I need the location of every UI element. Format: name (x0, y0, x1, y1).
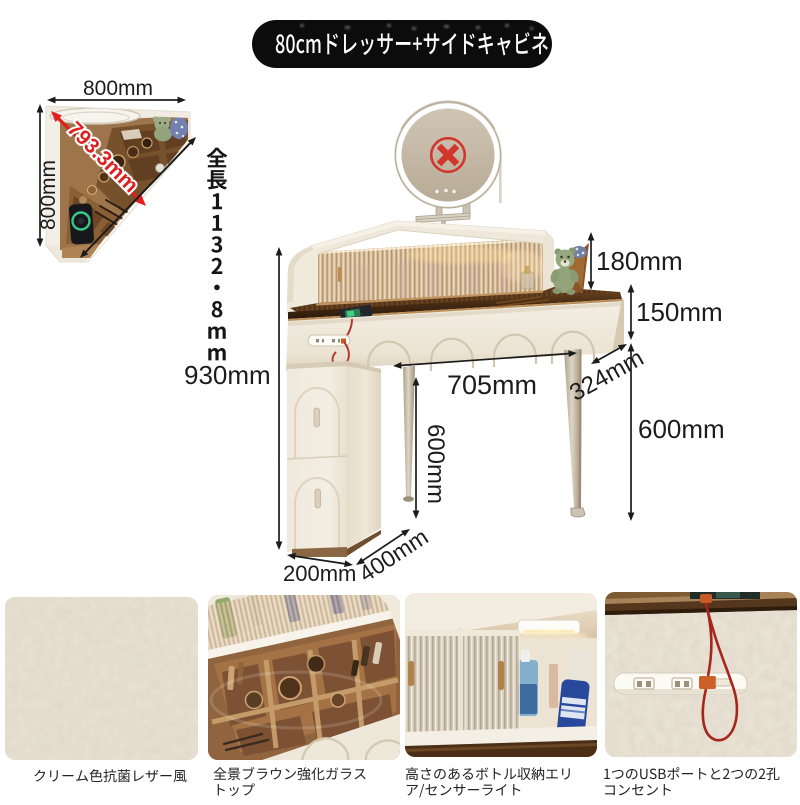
svg-text:150mm: 150mm (636, 297, 723, 327)
svg-text:800mm: 800mm (83, 77, 153, 100)
svg-text:180mm: 180mm (596, 246, 683, 276)
svg-text:705mm: 705mm (447, 370, 537, 400)
svg-text:600mm: 600mm (422, 424, 449, 504)
svg-text:600mm: 600mm (638, 414, 725, 444)
svg-text:930mm: 930mm (184, 360, 271, 390)
svg-text:200mm: 200mm (283, 561, 356, 586)
